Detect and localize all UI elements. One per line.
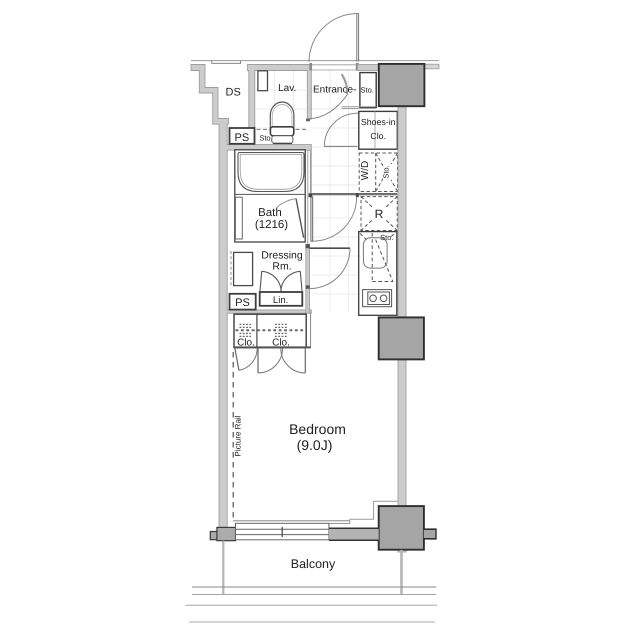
- svg-text:Entrance-: Entrance-: [313, 85, 356, 96]
- svg-text:Clo.: Clo.: [370, 131, 386, 141]
- svg-text:Sto.: Sto.: [259, 133, 272, 142]
- svg-text:Lav.: Lav.: [278, 83, 296, 94]
- svg-text:PS: PS: [235, 132, 250, 144]
- svg-text:Balcony: Balcony: [291, 557, 336, 571]
- svg-text:(9.0J): (9.0J): [297, 437, 333, 453]
- svg-text:Rm.: Rm.: [272, 260, 291, 272]
- svg-text:Picture Rail: Picture Rail: [233, 415, 242, 456]
- svg-text:Bedroom: Bedroom: [289, 421, 346, 437]
- svg-text:Bath: Bath: [258, 207, 282, 219]
- svg-text:W/D: W/D: [360, 161, 371, 180]
- svg-text:Clo.: Clo.: [237, 337, 255, 348]
- svg-text:Sto.: Sto.: [361, 85, 374, 94]
- svg-text:PS: PS: [235, 297, 250, 309]
- svg-text:R: R: [375, 207, 384, 221]
- svg-text:Shoes-in: Shoes-in: [361, 117, 396, 127]
- svg-text:Clo.: Clo.: [272, 337, 290, 348]
- svg-text:Sto.: Sto.: [382, 165, 391, 178]
- svg-text:DS: DS: [226, 87, 241, 99]
- svg-text:(1216): (1216): [255, 219, 288, 231]
- svg-text:Lin.: Lin.: [273, 295, 288, 306]
- svg-text:Sto.: Sto.: [380, 233, 393, 242]
